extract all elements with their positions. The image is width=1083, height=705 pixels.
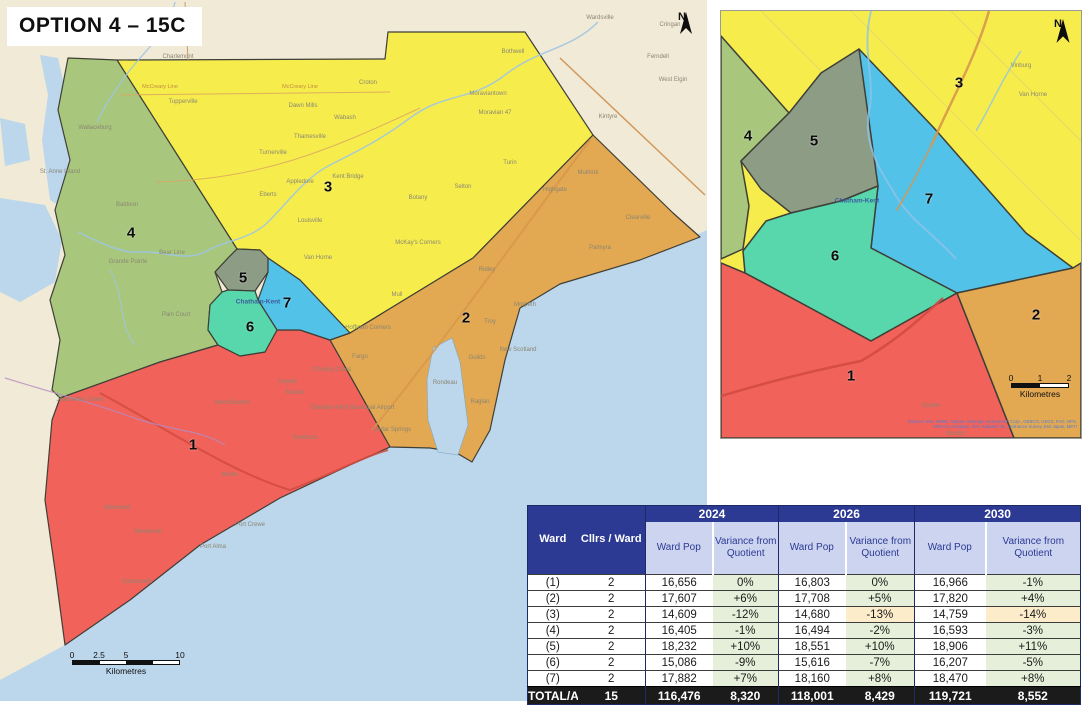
scale-tick-label: 0 (70, 650, 75, 660)
ward-pop-cell: 14,759 (915, 607, 986, 623)
cllrs-cell: 2 (578, 639, 646, 655)
total-value-cell: 119,721 (915, 687, 986, 705)
table-subheader-variance: Variance from Quotient (986, 522, 1081, 575)
cllrs-cell: 2 (578, 575, 646, 591)
ward-cell: (1) (528, 575, 578, 591)
variance-cell: -9% (713, 655, 779, 671)
inset-ward-map: Van HorneVinburgDoylesBuxtonChatham-Kent… (720, 10, 1082, 439)
variance-cell: +11% (986, 639, 1081, 655)
scale-tick-label: 2.5 (93, 650, 105, 660)
table-total-row: TOTAL/AVG15116,4768,320118,0018,429119,7… (528, 687, 1081, 705)
variance-cell: +10% (713, 639, 779, 655)
total-value-cell: 8,429 (846, 687, 915, 705)
ward-pop-cell: 16,966 (915, 575, 986, 591)
ward-pop-cell: 16,656 (646, 575, 713, 591)
variance-cell: -1% (986, 575, 1081, 591)
ward-pop-cell: 17,820 (915, 591, 986, 607)
ward-pop-cell: 16,803 (779, 575, 846, 591)
table-subheader-pop: Ward Pop (779, 522, 846, 575)
main-scale-bar: 02.5510Kilometres (72, 650, 180, 676)
ward-cell: (6) (528, 655, 578, 671)
variance-cell: -3% (986, 623, 1081, 639)
table-subheader-variance: Variance from Quotient (846, 522, 915, 575)
table-row: (6)215,086-9%15,616-7%16,207-5% (528, 655, 1081, 671)
total-value-cell: 8,320 (713, 687, 779, 705)
table-row: (2)217,607+6%17,708+5%17,820+4% (528, 591, 1081, 607)
total-label-cell: TOTAL/AVG (528, 687, 578, 705)
table-year-header: 2026 (779, 506, 915, 523)
scale-unit-label: Kilometres (1011, 389, 1069, 399)
variance-cell: +8% (846, 671, 915, 687)
table-subheader-pop: Ward Pop (915, 522, 986, 575)
inset-north-arrow-icon (1054, 19, 1072, 45)
cllrs-cell: 2 (578, 655, 646, 671)
ward-pop-cell: 15,086 (646, 655, 713, 671)
page: { "title": "OPTION 4 – 15C", "colors": {… (0, 0, 1083, 701)
variance-cell: +5% (846, 591, 915, 607)
cllrs-cell: 2 (578, 607, 646, 623)
scale-tick-label: 2 (1067, 373, 1072, 383)
table-row: (7)217,882+7%18,160+8%18,470+8% (528, 671, 1081, 687)
total-value-cell: 116,476 (646, 687, 713, 705)
ward-pop-cell: 15,616 (779, 655, 846, 671)
variance-cell: -7% (846, 655, 915, 671)
ward-pop-cell: 17,607 (646, 591, 713, 607)
inset-scale-bar: 012Kilometres (1011, 373, 1069, 399)
variance-cell: +7% (713, 671, 779, 687)
table-year-header: 2024 (646, 506, 779, 523)
scale-bar-graphic (72, 660, 180, 665)
variance-cell: -2% (846, 623, 915, 639)
table-subheader-pop: Ward Pop (646, 522, 713, 575)
ward-cell: (4) (528, 623, 578, 639)
ward-pop-cell: 18,906 (915, 639, 986, 655)
variance-cell: +10% (846, 639, 915, 655)
ward-pop-cell: 18,232 (646, 639, 713, 655)
ward-cell: (2) (528, 591, 578, 607)
table-row: (1)216,6560%16,8030%16,966-1% (528, 575, 1081, 591)
table-row: (4)216,405-1%16,494-2%16,593-3% (528, 623, 1081, 639)
ward-pop-cell: 16,207 (915, 655, 986, 671)
variance-cell: 0% (713, 575, 779, 591)
cllrs-cell: 2 (578, 671, 646, 687)
cllrs-cell: 2 (578, 623, 646, 639)
variance-cell: +8% (986, 671, 1081, 687)
ward-pop-cell: 17,882 (646, 671, 713, 687)
ward-pop-cell: 18,470 (915, 671, 986, 687)
table-row: (5)218,232+10%18,551+10%18,906+11% (528, 639, 1081, 655)
variance-cell: 0% (846, 575, 915, 591)
scale-unit-label: Kilometres (72, 666, 180, 676)
variance-cell: -12% (713, 607, 779, 623)
variance-cell: -5% (986, 655, 1081, 671)
population-table-panel: WardCllrs / Ward202420262030Ward PopVari… (527, 505, 1083, 701)
ward-pop-cell: 14,609 (646, 607, 713, 623)
ward-cell: (5) (528, 639, 578, 655)
ward-cell: (7) (528, 671, 578, 687)
ward-cell: (3) (528, 607, 578, 623)
ward-pop-cell: 16,494 (779, 623, 846, 639)
scale-bar-graphic (1011, 383, 1069, 388)
scale-tick-label: 5 (124, 650, 129, 660)
ward-pop-cell: 16,593 (915, 623, 986, 639)
total-value-cell: 8,552 (986, 687, 1081, 705)
scale-tick-label: 1 (1038, 373, 1043, 383)
total-cllrs-cell: 15 (578, 687, 646, 705)
ward-pop-cell: 18,160 (779, 671, 846, 687)
variance-cell: -14% (986, 607, 1081, 623)
cllrs-cell: 2 (578, 591, 646, 607)
ward-pop-cell: 16,405 (646, 623, 713, 639)
ward-population-table: WardCllrs / Ward202420262030Ward PopVari… (527, 505, 1081, 705)
ward-pop-cell: 14,680 (779, 607, 846, 623)
scale-tick-label: 0 (1009, 373, 1014, 383)
variance-cell: -13% (846, 607, 915, 623)
table-subheader-variance: Variance from Quotient (713, 522, 779, 575)
map-credits-line1: Sources: Esri, HERE, Garmin, Intermap, i… (890, 420, 1077, 425)
map-credits: Sources: Esri, HERE, Garmin, Intermap, i… (890, 420, 1077, 430)
variance-cell: +4% (986, 591, 1081, 607)
variance-cell: +6% (713, 591, 779, 607)
table-row: (3)214,609-12%14,680-13%14,759-14% (528, 607, 1081, 623)
total-value-cell: 118,001 (779, 687, 846, 705)
table-header-cllrs: Cllrs / Ward (578, 506, 646, 575)
map-title: OPTION 4 – 15C (7, 7, 202, 46)
north-arrow: N (678, 12, 686, 23)
variance-cell: -1% (713, 623, 779, 639)
table-year-header: 2030 (915, 506, 1081, 523)
map-credits-line2: NRCAN, GeoBase, IGN, Kadaster NL, Ordnan… (890, 425, 1077, 430)
scale-tick-label: 10 (175, 650, 184, 660)
table-header-ward: Ward (528, 506, 578, 575)
ward-pop-cell: 17,708 (779, 591, 846, 607)
ward-pop-cell: 18,551 (779, 639, 846, 655)
inset-north-arrow: N (1054, 19, 1062, 30)
north-arrow-icon (678, 12, 694, 36)
